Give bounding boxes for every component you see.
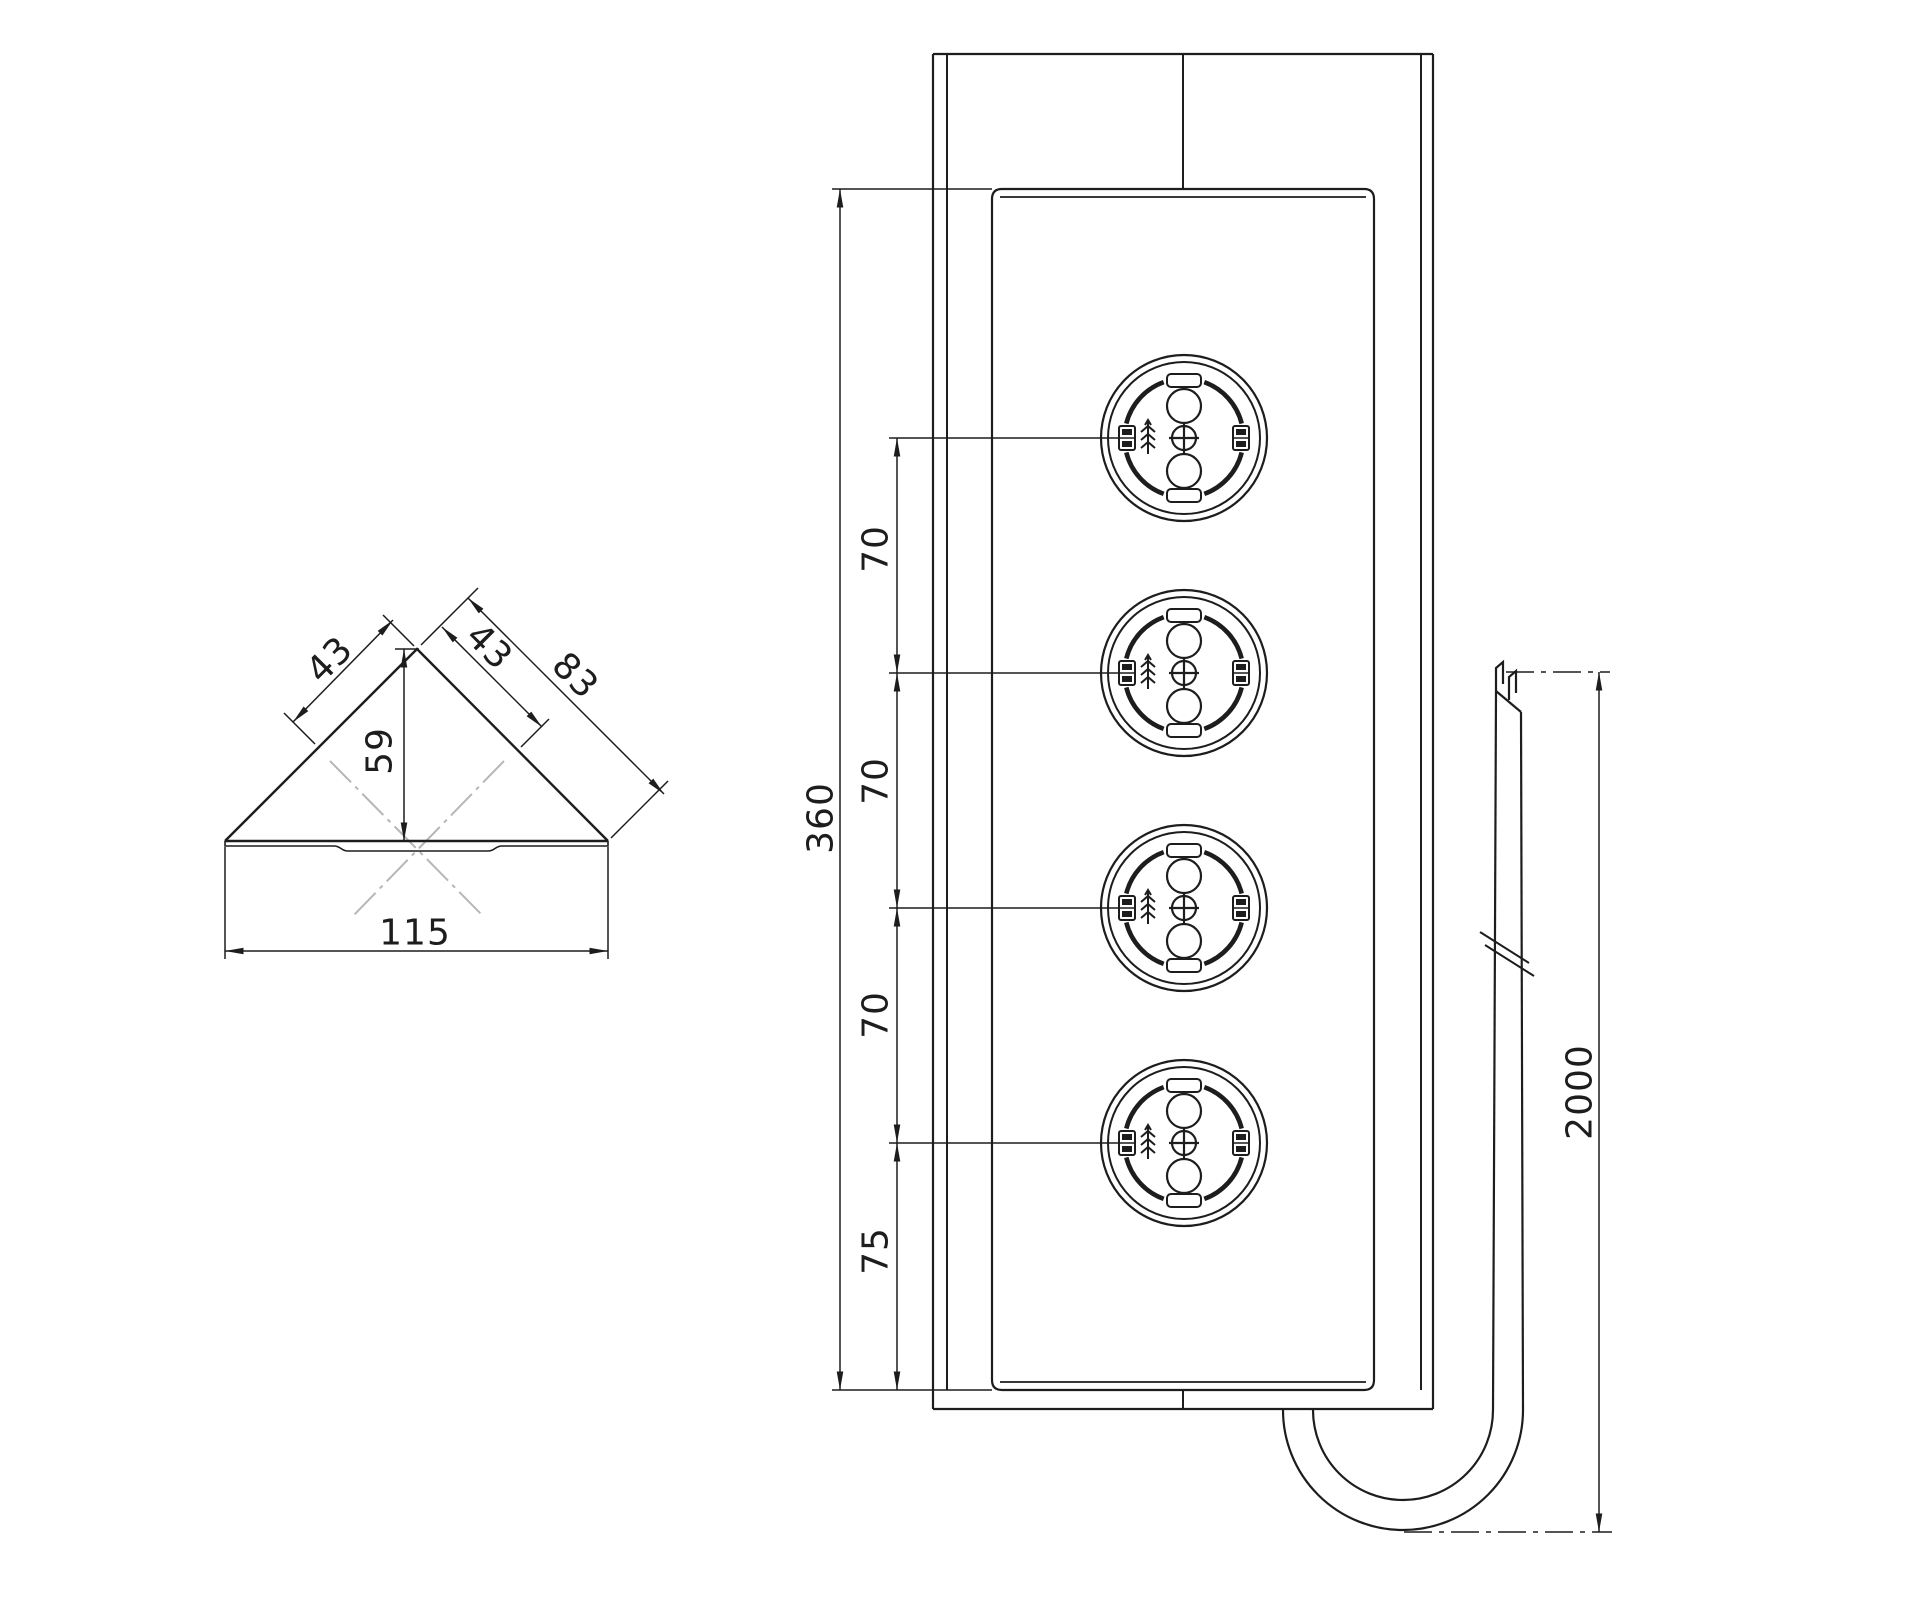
socket-3 <box>1101 825 1267 991</box>
dim-label-corner-base-width: 115 <box>379 913 451 954</box>
dim-label-bottom-socket-offset: 75 <box>856 1227 897 1275</box>
technical-drawing-page: 43 43 83 59 115 360 70 70 70 75 2000 <box>0 0 1920 1600</box>
housing-outline <box>933 54 1433 1409</box>
dim-label-socket-pitch-b: 70 <box>856 757 897 805</box>
front-view <box>832 54 1433 1409</box>
corner-profile-view <box>225 588 668 959</box>
socket-1 <box>1101 355 1267 521</box>
corner-phantom-centerlines <box>330 761 504 917</box>
dim-label-faceplate-height: 360 <box>801 782 842 854</box>
socket-4 <box>1101 1060 1267 1226</box>
dim-label-cable-length: 2000 <box>1560 1044 1601 1140</box>
dim-label-corner-apex-height: 59 <box>360 727 401 775</box>
socket-2 <box>1101 590 1267 756</box>
drawing-canvas <box>0 0 1920 1600</box>
cable-break-symbol <box>1480 932 1534 976</box>
faceplate <box>992 189 1374 1390</box>
dim-label-socket-pitch-a: 70 <box>856 525 897 573</box>
cable-outline <box>1283 662 1523 1530</box>
dim-label-socket-pitch-c: 70 <box>856 991 897 1039</box>
